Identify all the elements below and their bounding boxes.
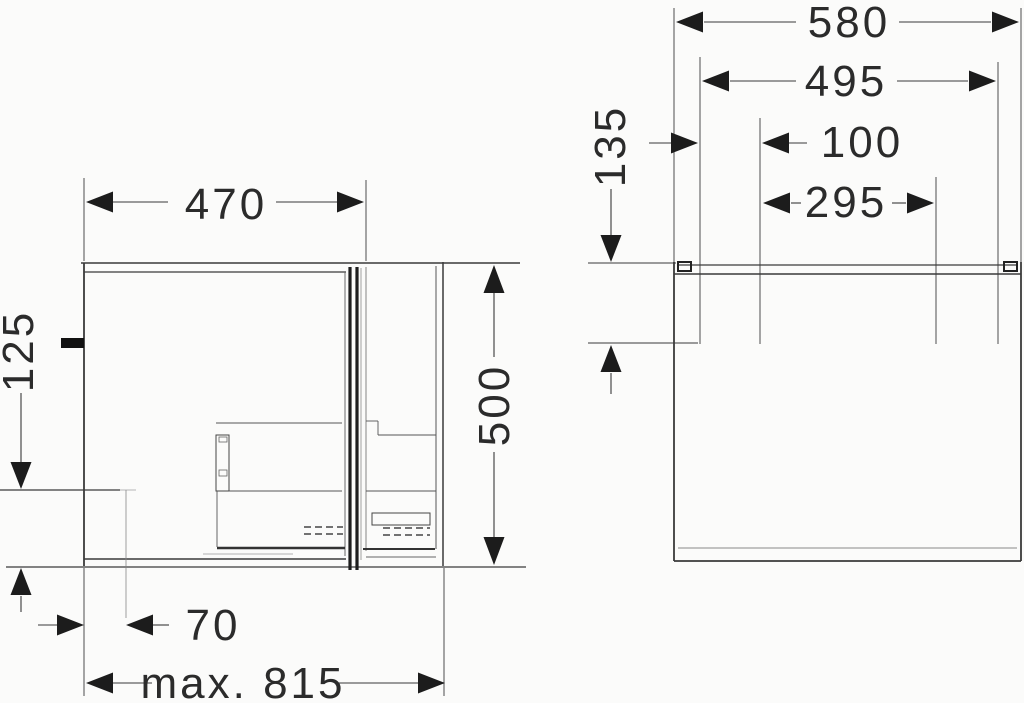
arrow-right-icon bbox=[969, 71, 996, 92]
hatch-blocks bbox=[304, 527, 430, 535]
arrow-down-icon bbox=[601, 235, 622, 262]
arrow-right-icon bbox=[671, 133, 698, 154]
countertop-left-cap bbox=[678, 262, 691, 271]
mounting-bracket-mark bbox=[61, 338, 84, 348]
arrow-left-icon bbox=[86, 673, 113, 694]
pullout-section bbox=[363, 262, 443, 566]
door-panel bbox=[350, 267, 361, 570]
front-inner-width-label: 495 bbox=[805, 60, 887, 104]
technical-drawing-page: 470 125 500 70 max. 815 580 495 100 295 … bbox=[0, 0, 1024, 703]
side-bottom-offset-label: 125 bbox=[0, 310, 41, 392]
side-height-label: 500 bbox=[473, 364, 517, 446]
arrow-right-icon bbox=[337, 192, 364, 213]
arrow-left-icon bbox=[86, 192, 113, 213]
front-hole-spacing-label: 295 bbox=[805, 181, 887, 225]
arrow-right-icon bbox=[907, 193, 934, 214]
arrow-down-icon bbox=[11, 462, 32, 489]
arrow-down-icon bbox=[484, 537, 505, 565]
side-depth-label: 470 bbox=[185, 183, 267, 227]
front-hole-offset-label: 100 bbox=[821, 121, 903, 165]
side-view-outline bbox=[6, 262, 526, 570]
side-max-extension-label: max. 815 bbox=[141, 662, 346, 703]
arrow-left-icon bbox=[762, 133, 789, 154]
arrow-left-icon bbox=[702, 71, 729, 92]
front-top-offset-label: 135 bbox=[589, 105, 633, 187]
front-width-label: 580 bbox=[808, 1, 890, 45]
drawer-interior bbox=[203, 423, 345, 554]
arrow-up-icon bbox=[11, 568, 32, 595]
arrow-left-icon bbox=[126, 615, 153, 636]
side-view-dimensions bbox=[0, 178, 505, 696]
arrow-up-icon bbox=[484, 265, 505, 293]
arrow-left-icon bbox=[763, 193, 790, 214]
arrow-right-icon bbox=[57, 615, 84, 636]
side-rail-offset-label: 70 bbox=[186, 604, 241, 648]
arrow-right-icon bbox=[418, 673, 445, 694]
arrow-up-icon bbox=[601, 345, 622, 372]
arrow-left-icon bbox=[676, 12, 703, 33]
countertop-right-cap bbox=[1004, 262, 1017, 271]
arrow-right-icon bbox=[992, 12, 1019, 33]
front-view-dimensions bbox=[588, 12, 1019, 395]
